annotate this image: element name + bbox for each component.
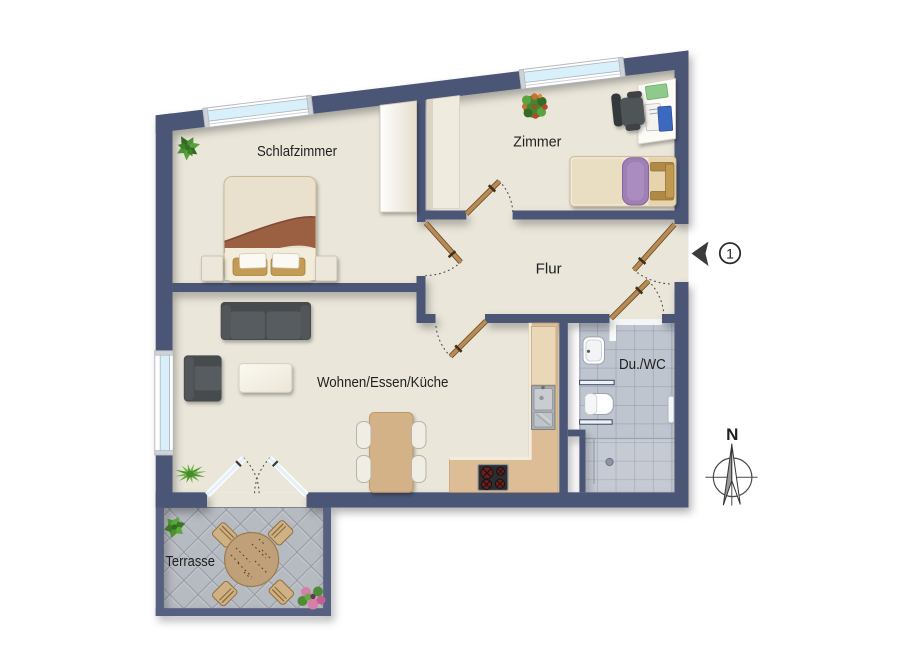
svg-text:Terrasse: Terrasse [165,553,215,570]
svg-text:Flur: Flur [536,260,562,277]
svg-text:Du./WC: Du./WC [619,356,666,373]
svg-text:Wohnen/Essen/Küche: Wohnen/Essen/Küche [317,374,449,391]
svg-text:1: 1 [726,246,734,262]
svg-text:N: N [726,425,738,444]
svg-text:Zimmer: Zimmer [513,134,561,151]
svg-text:Schlafzimmer: Schlafzimmer [257,143,337,160]
